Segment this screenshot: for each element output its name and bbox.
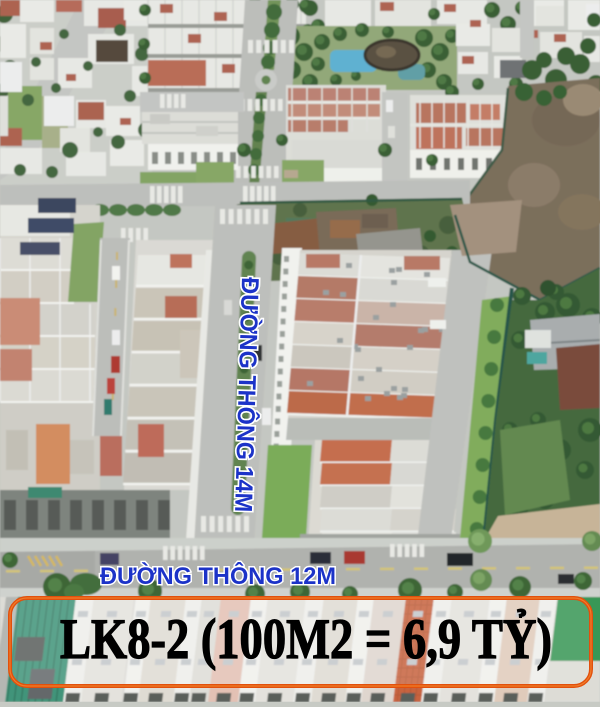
svg-text:LK8-2 (100M2 = 6,9 TỶ): LK8-2 (100M2 = 6,9 TỶ) xyxy=(60,608,552,671)
svg-text:ĐƯỜNG THÔNG 12M: ĐƯỜNG THÔNG 12M xyxy=(100,562,336,590)
